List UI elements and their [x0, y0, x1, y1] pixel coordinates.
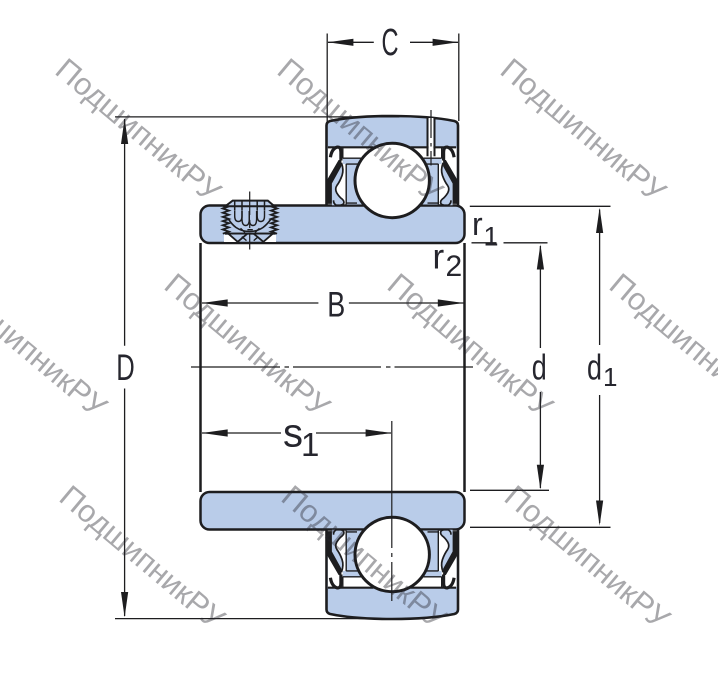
svg-text:ПодшипникРУ: ПодшипникРУ: [498, 478, 677, 636]
svg-text:s: s: [283, 412, 303, 456]
svg-text:D: D: [116, 347, 135, 388]
svg-text:B: B: [327, 285, 345, 324]
svg-text:1: 1: [484, 222, 499, 252]
svg-text:d: d: [587, 347, 602, 388]
svg-text:ПодшипникРУ: ПодшипникРУ: [158, 266, 337, 424]
svg-text:ПодшипникРУ: ПодшипникРУ: [494, 51, 673, 209]
svg-text:ПодшипникРУ: ПодшипникРУ: [381, 266, 560, 424]
svg-text:ПодшипникРУ: ПодшипникРУ: [603, 266, 718, 424]
svg-text:2: 2: [446, 250, 463, 283]
svg-text:C: C: [382, 22, 399, 64]
svg-text:r: r: [433, 238, 445, 277]
svg-text:ПодшипникРУ: ПодшипникРУ: [0, 266, 114, 424]
svg-text:r: r: [472, 206, 483, 242]
svg-text:1: 1: [301, 426, 319, 463]
svg-text:1: 1: [603, 362, 617, 392]
svg-text:ПодшипникРУ: ПодшипникРУ: [49, 51, 228, 209]
